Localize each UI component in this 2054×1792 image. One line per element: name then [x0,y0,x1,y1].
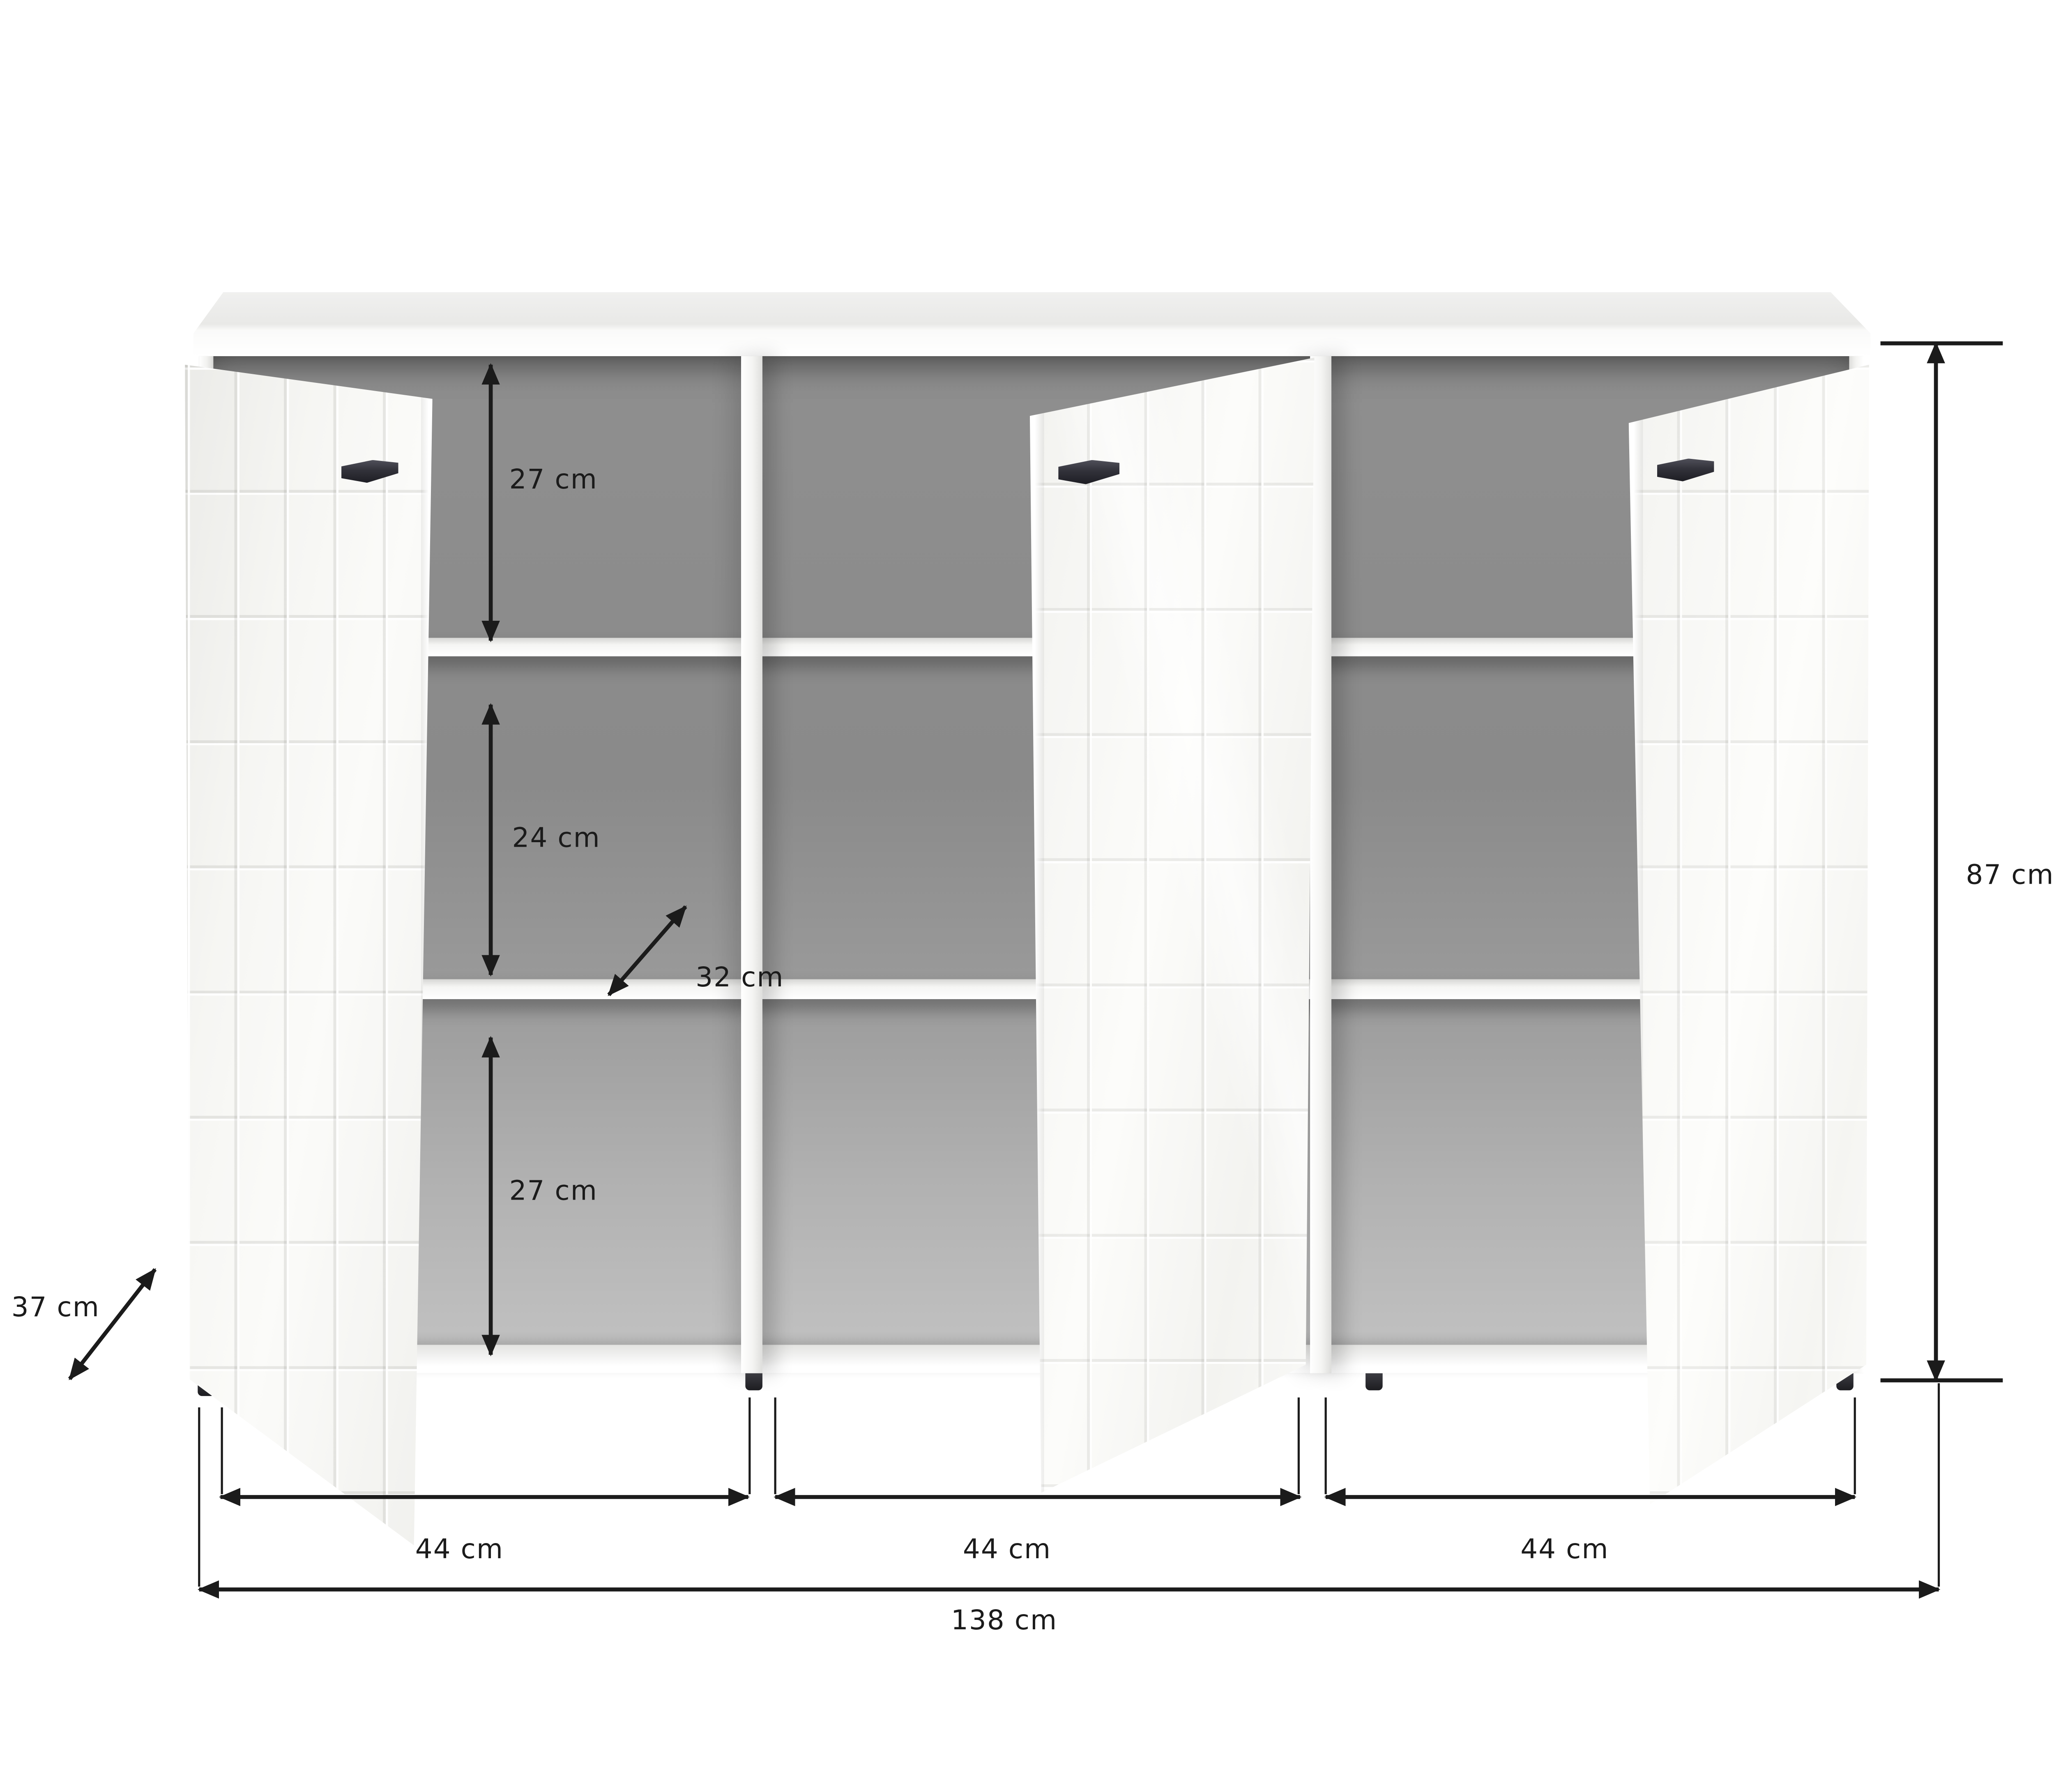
right-door-tile-face [1629,365,1871,1506]
cabinet-foot [745,1373,762,1391]
dim-label-inner-middle-height: 24 cm [512,823,601,854]
dim-label-door-width-2: 44 cm [963,1534,1051,1565]
middle-door-tile-face [1030,357,1316,1494]
dim-label-height: 87 cm [1966,860,2054,891]
shelf-upper [213,638,1849,656]
dim-label-inner-top-height: 27 cm [509,464,598,495]
dim-label-inner-bottom-height: 27 cm [509,1175,598,1207]
dim-label-total-width: 138 cm [951,1605,1057,1636]
left-door [185,365,434,1547]
dim-label-door-width-1: 44 cm [415,1534,504,1565]
partition-left [741,356,762,1373]
furniture-dimension-diagram: 27 cm 24 cm 32 cm 27 cm 37 cm 87 cm 44 c… [0,120,2054,1672]
arrow-depth [70,1269,155,1379]
dim-label-door-width-3: 44 cm [1520,1534,1609,1565]
left-door-tile-face [185,365,434,1547]
cabinet-top-panel [193,292,1870,356]
partition-right [1310,356,1331,1373]
cabinet-foot [1365,1373,1383,1391]
dim-label-depth: 37 cm [12,1292,100,1323]
middle-door [1030,357,1316,1494]
shelf-lower [213,979,1849,999]
dim-label-inner-depth: 32 cm [695,962,784,993]
cabinet-bottom-board [213,1345,1849,1373]
right-door [1629,365,1871,1506]
